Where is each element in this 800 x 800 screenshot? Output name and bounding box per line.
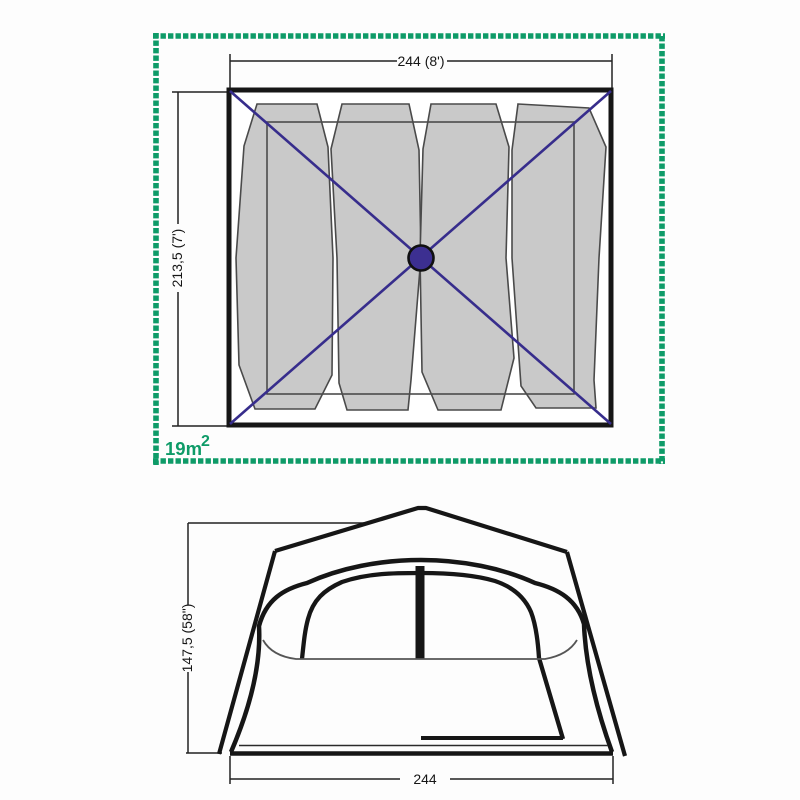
- svg-text:2: 2: [201, 433, 210, 450]
- svg-text:19m: 19m: [165, 438, 202, 459]
- svg-text:213,5 (7'): 213,5 (7'): [169, 229, 185, 288]
- svg-text:244: 244: [413, 771, 437, 787]
- svg-text:244 (8'): 244 (8'): [397, 53, 444, 69]
- svg-text:147,5 (58"): 147,5 (58"): [179, 604, 195, 673]
